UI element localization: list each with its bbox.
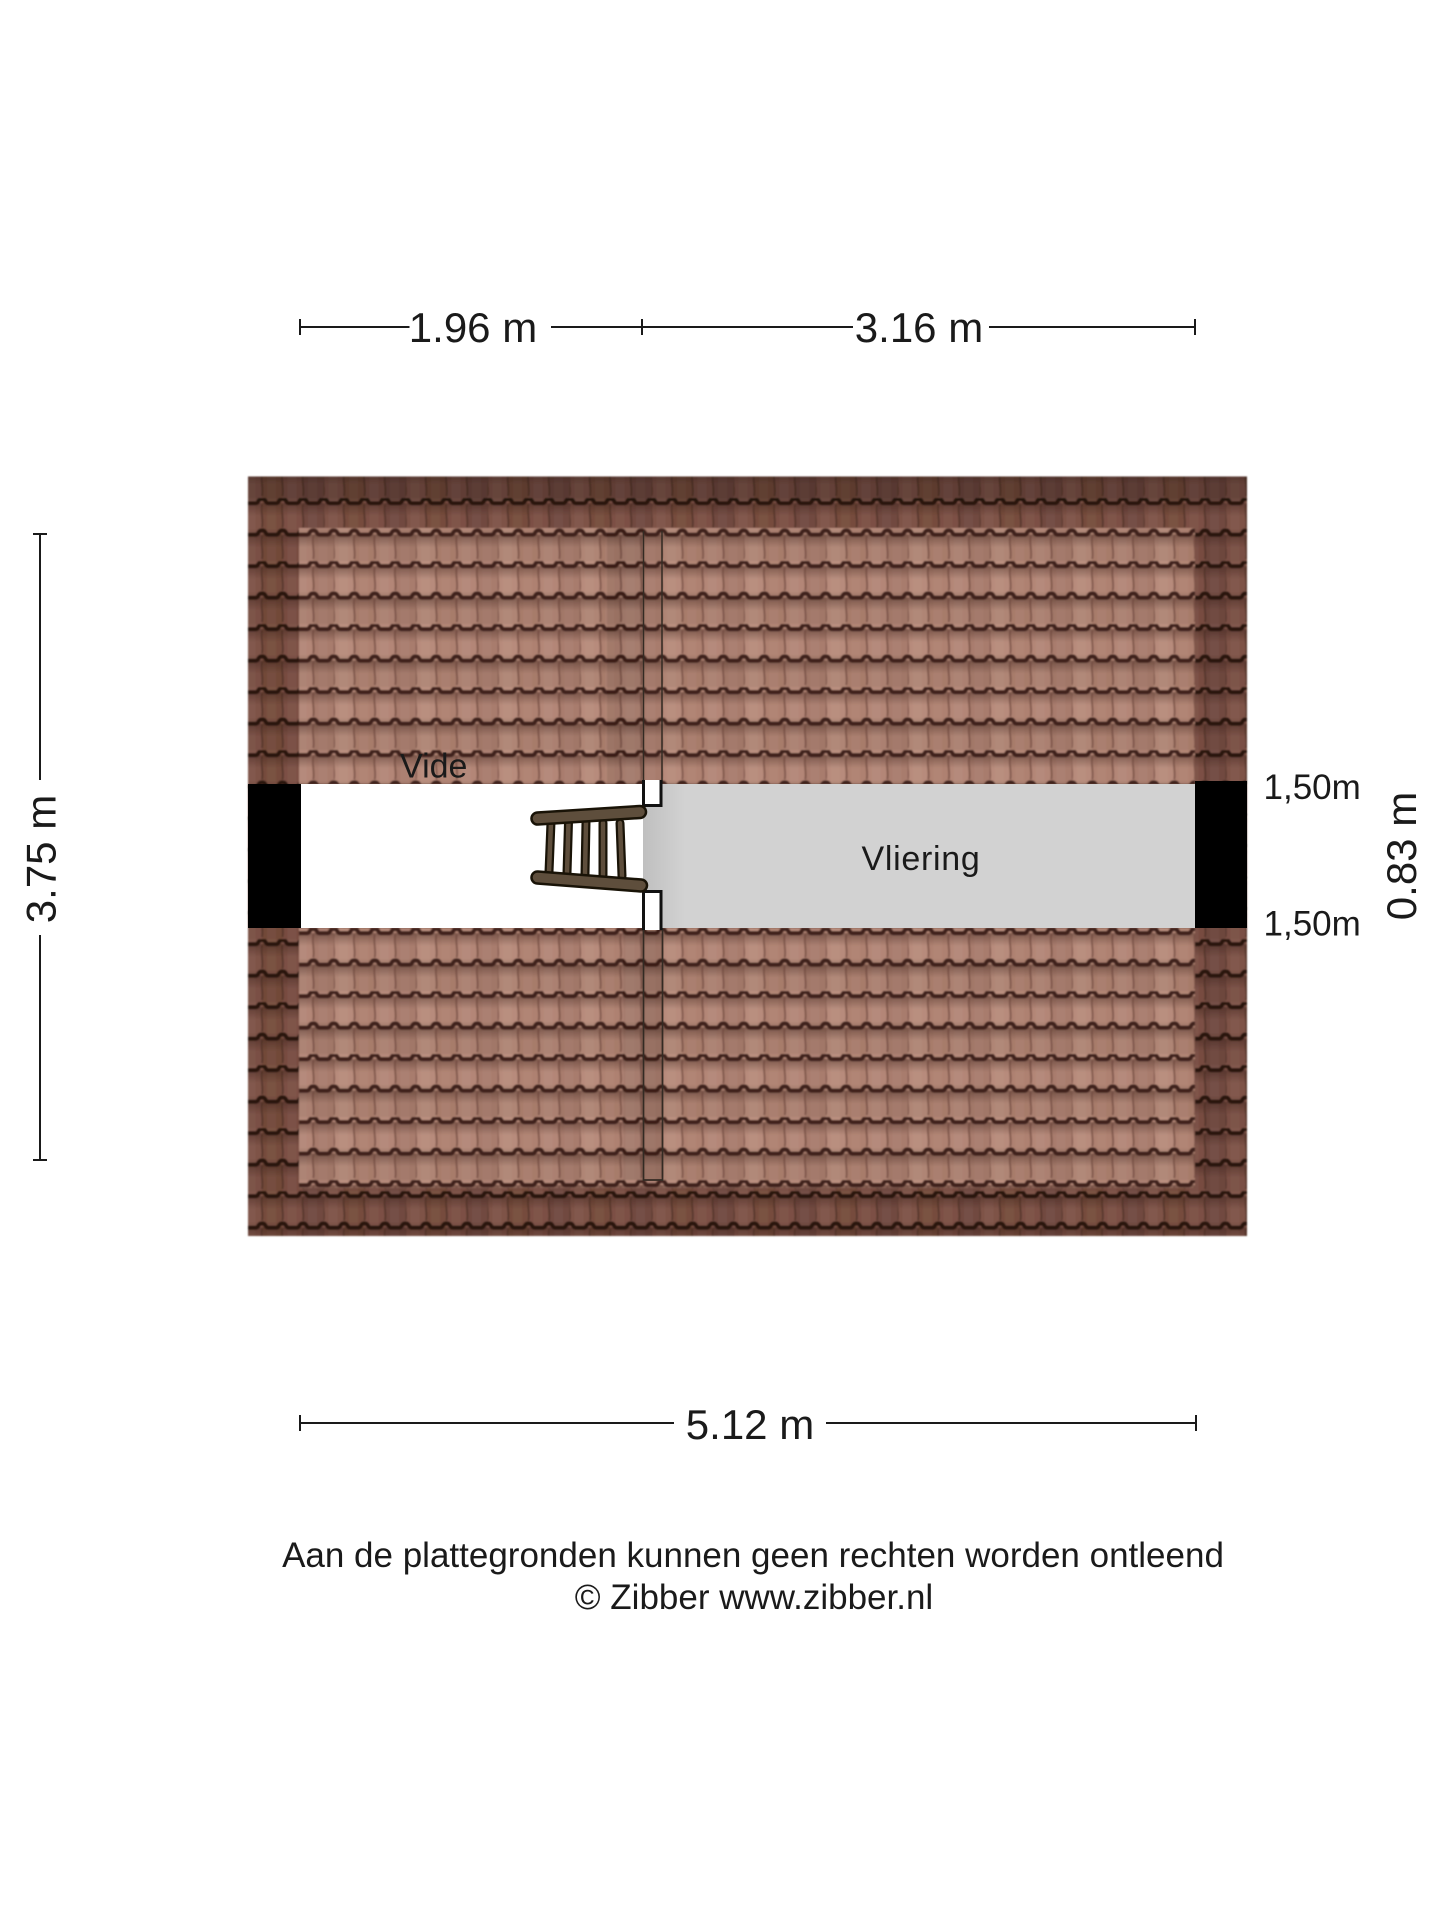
svg-text:3.75 m: 3.75 m xyxy=(18,795,65,923)
svg-text:1,50m: 1,50m xyxy=(1264,768,1361,807)
svg-text:5.12 m: 5.12 m xyxy=(686,1401,814,1448)
svg-text:0.83 m: 0.83 m xyxy=(1378,792,1425,920)
svg-text:Aan de plattegronden kunnen ge: Aan de plattegronden kunnen geen rechten… xyxy=(282,1536,1224,1575)
svg-text:1.96 m: 1.96 m xyxy=(409,304,537,351)
svg-text:© Zibber www.zibber.nl: © Zibber www.zibber.nl xyxy=(575,1578,933,1617)
svg-text:1,50m: 1,50m xyxy=(1264,905,1361,944)
svg-text:Vide: Vide xyxy=(400,748,467,786)
svg-text:Vliering: Vliering xyxy=(862,840,981,878)
svg-text:3.16 m: 3.16 m xyxy=(855,304,983,351)
